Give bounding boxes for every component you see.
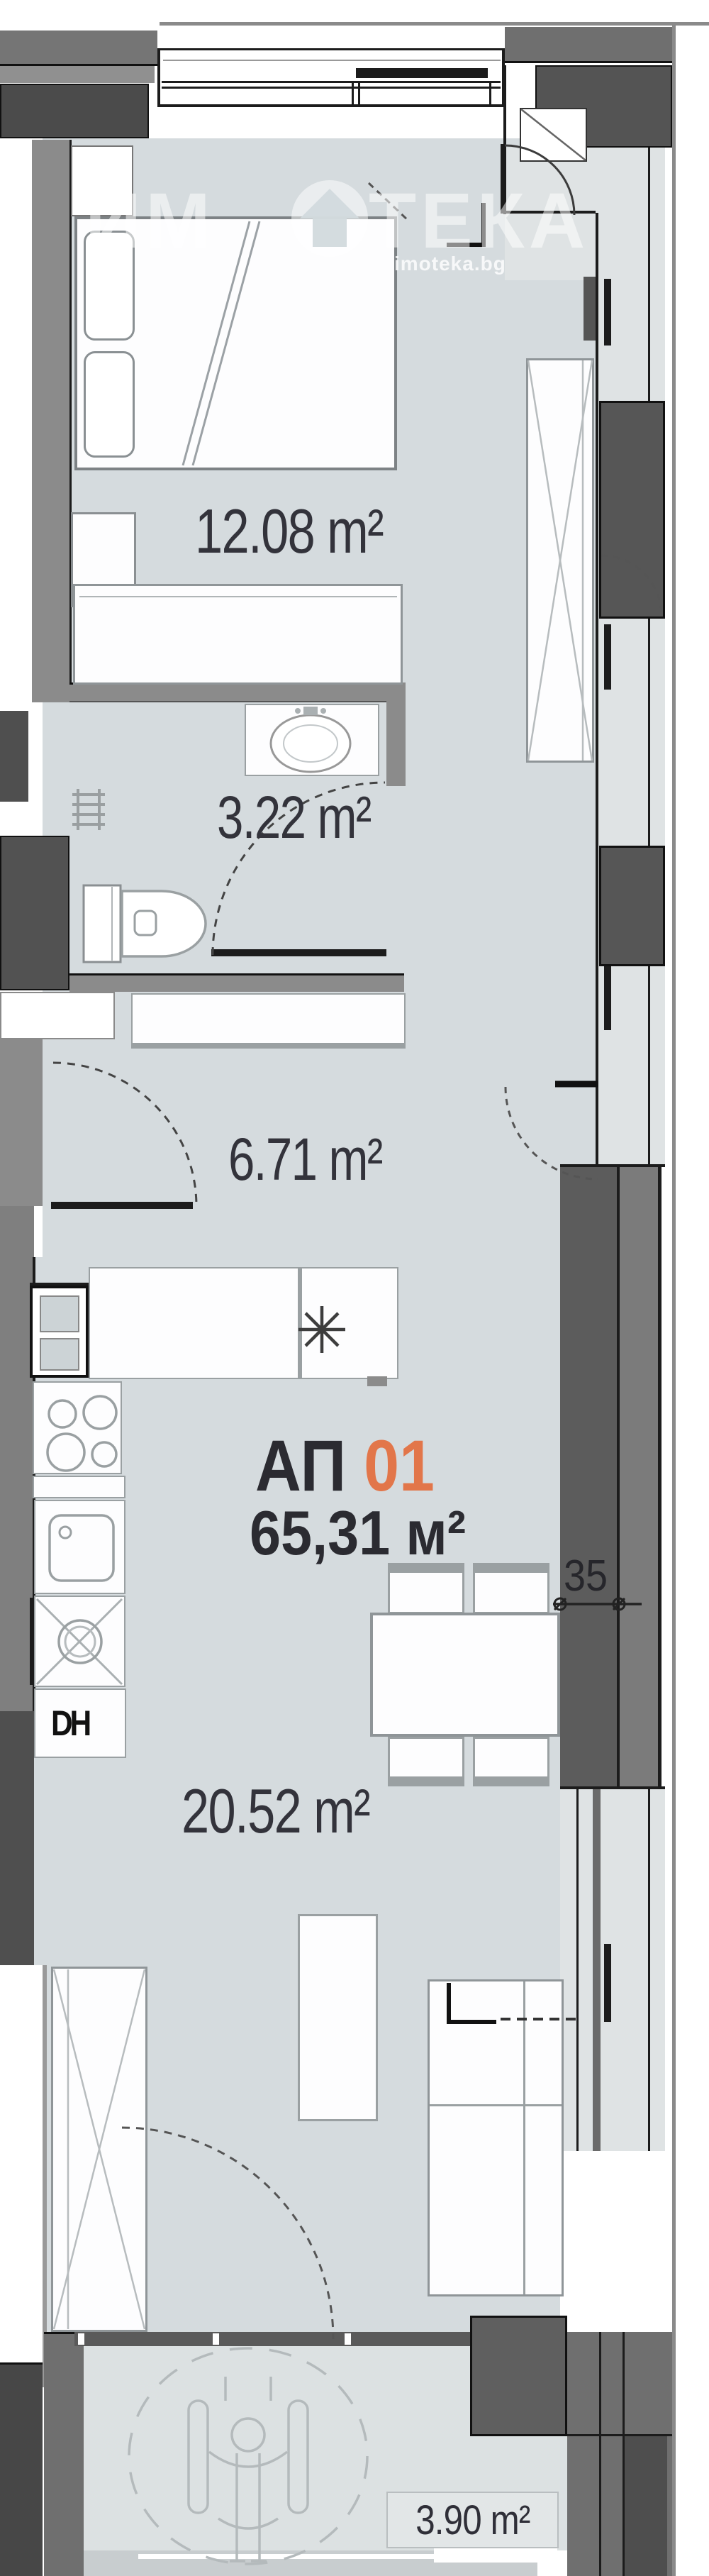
window-mullion [489,81,491,107]
shaft-box [520,108,587,162]
wall-segment [0,2362,43,2576]
sofa-back-line [523,1981,525,2294]
wall-edge-line [560,1164,665,1167]
stove [33,1381,122,1474]
window-sash-line [162,87,501,89]
wall-edge-line [505,211,596,214]
dimension-35-label: 35 [564,1551,608,1601]
terrace-area-box: 3.90 m² [386,2492,559,2548]
living-area-label: 20.52 m² [182,1775,369,1847]
balcony-door-frame [604,1944,611,2022]
bathroom-area-label: 3.22 m² [217,783,371,852]
chair [388,1737,464,1786]
coffee-table [298,1914,378,2121]
washing-machine-edge [30,1598,33,1685]
wall-gap [345,2333,351,2345]
door-leaf-bathroom [211,949,386,956]
counter-segment [33,1476,125,1498]
kitchen-counter-divider [298,1268,302,1378]
counter-end-tick [367,1376,387,1386]
wall-segment [505,27,672,63]
wall-block-right [599,401,665,619]
wall-block-right [599,846,665,966]
washbasin-counter [245,704,379,776]
fridge-compartment [40,1295,79,1332]
window-mullion [358,81,360,107]
wall-block-right-large [620,1167,658,1789]
stair-lobby [0,992,115,1039]
balcony-door-frame [604,624,611,690]
dishwasher-label: DH [51,1703,89,1744]
bedroom-area-label: 12.08 m² [195,495,383,568]
pillow [84,351,135,458]
window-frame [157,48,160,107]
wall-edge-line [658,1167,661,1789]
building-edge-top [160,22,709,26]
wall-block [470,2316,567,2436]
sofa-seat-line [430,2104,562,2106]
unit-title-space [346,1425,364,1506]
washing-machine [34,1596,125,1687]
chair [473,1563,549,1614]
wall-block-right-large [560,1167,617,1789]
wall-segment [0,31,157,66]
terrace-label-strip [434,2548,557,2563]
wall-edge-line [617,1167,620,1789]
apartment-right-wall-line [596,213,598,1167]
wardrobe-bedroom-long [73,584,403,685]
neighbor-area [0,1965,47,2387]
unit-total-area: 65,31 м² [250,1497,466,1569]
window-frame [157,48,505,50]
wall-segment [32,140,71,702]
hallway-area-label: 6.71 m² [228,1125,382,1194]
sofa [428,1979,564,2296]
wall-terrace-left [44,2332,84,2576]
wall-edge-line [560,1786,665,1789]
door-leaf-entrance [51,1202,193,1209]
balcony-door-frame [604,966,611,1030]
window-sill-bar [356,68,488,78]
railing-line [648,1789,650,2151]
living-window-line [576,1789,579,2151]
wall-gap [213,2333,219,2345]
fridge-compartment [40,1338,79,1371]
wall-bedroom-bathroom [69,682,404,702]
wall-block [625,2436,667,2576]
building-edge-right [672,22,676,2576]
balcony-door-frame [604,279,611,346]
closet-box [71,145,133,216]
railing-line [648,148,650,1167]
wall-segment [0,836,69,990]
sink-unit [34,1500,125,1594]
window-frame [157,104,505,107]
wall-gap [78,2333,84,2345]
unit-title-prefix: АП [255,1425,346,1506]
wall-edge-line [567,2434,672,2436]
window-mullion [352,81,354,107]
door-leaf-bedroom-balcony [501,144,506,214]
window-sash-line [162,81,501,83]
wall-bathroom-bottom [69,973,404,992]
wall-edge-line [599,2332,601,2576]
wardrobe-bedroom-tall [526,358,594,763]
window-glass [157,27,505,106]
living-window-frame [593,1789,601,2151]
dining-table [370,1613,560,1737]
wall-terrace-top [74,2332,470,2346]
wall-kitchen-left [0,1206,34,1711]
wardrobe-inner-line [79,596,397,597]
wall-segment [0,66,155,83]
unit-title-number: 01 [364,1425,435,1506]
wall-segment [0,84,149,138]
hallway-cabinet [131,993,406,1049]
kitchen-counter [89,1267,398,1379]
terrace-area-label: 3.90 m² [415,2497,530,2544]
wall-segment [0,1711,34,1965]
floor-plan-canvas: DH 3.90 m² [0,0,709,2576]
wardrobe-living [51,1967,147,2332]
wall-segment [0,1039,43,1206]
window-frame [163,60,501,61]
wall-bathroom-right [386,682,406,786]
unit-title: АП 01 [255,1425,435,1508]
chair [473,1737,549,1786]
wall-segment [0,711,28,802]
pillow [84,231,135,341]
chair [388,1563,464,1614]
